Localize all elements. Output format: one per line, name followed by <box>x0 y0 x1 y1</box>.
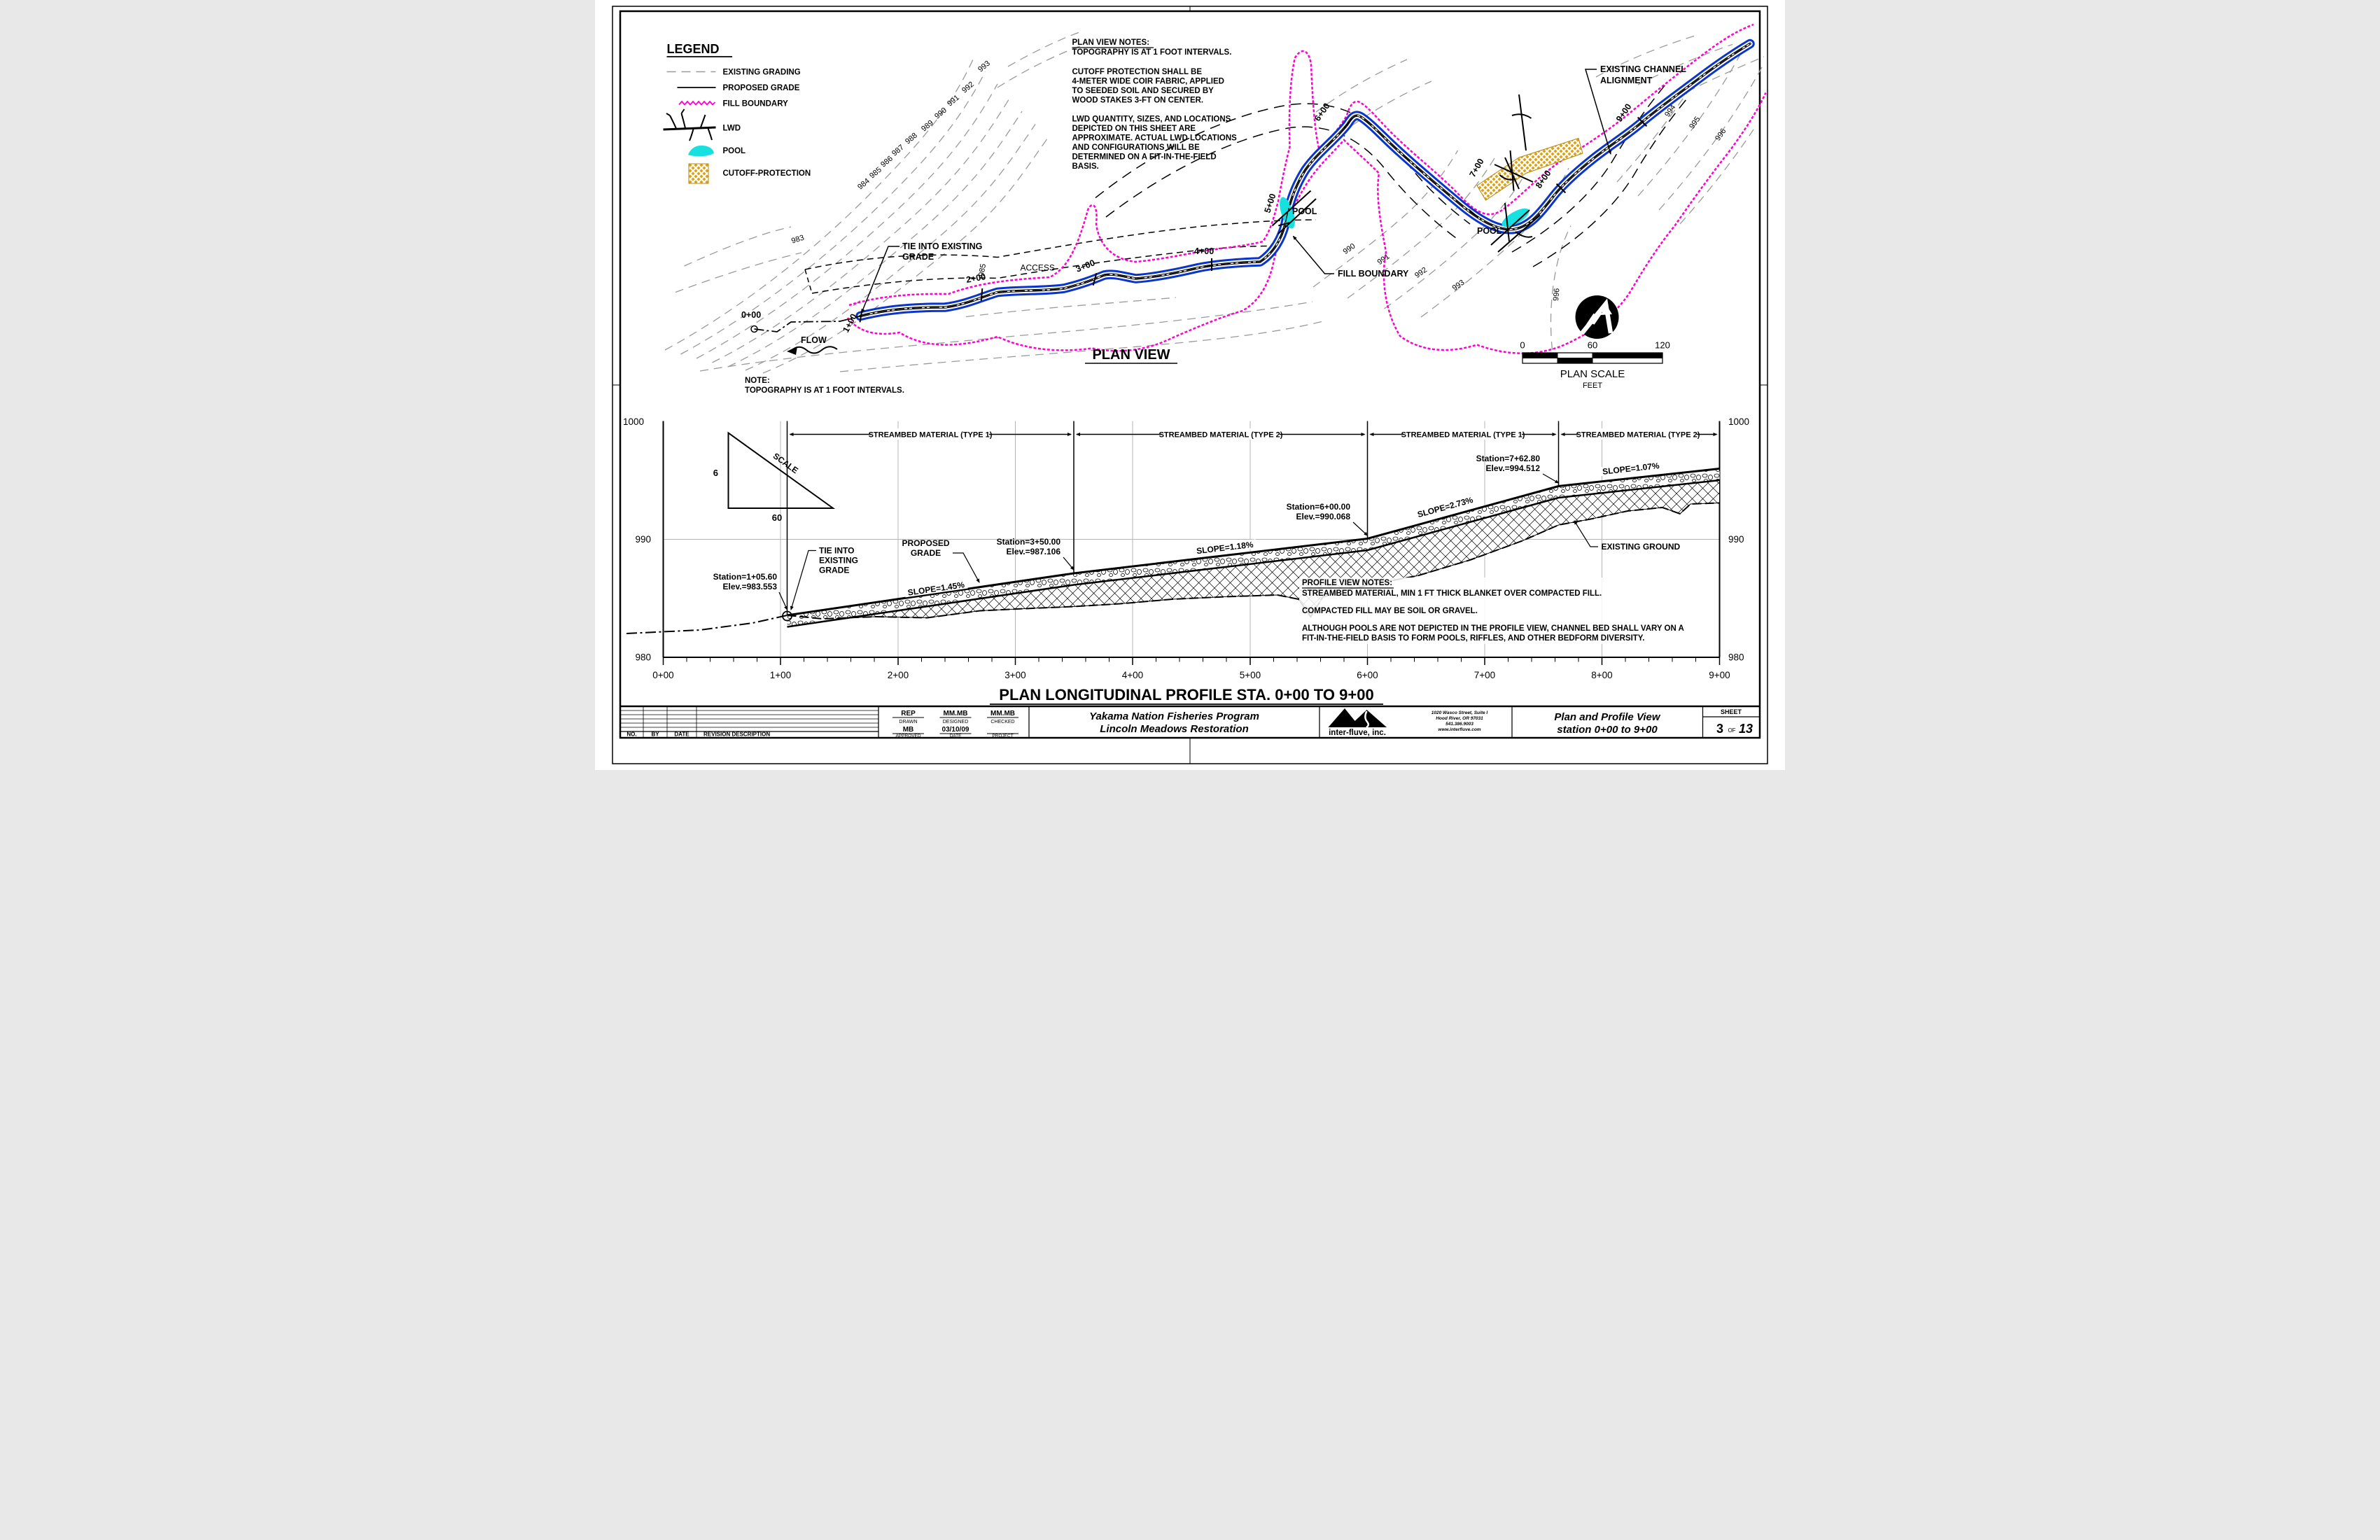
contour-label: 985 <box>868 166 883 181</box>
station-axis-label: 8+00 <box>1591 670 1612 680</box>
zone-label: STREAMBED MATERIAL (TYPE 1) <box>1401 431 1525 440</box>
station-axis-label: 5+00 <box>1240 670 1261 680</box>
elev-label: 990 <box>635 534 651 545</box>
legend-cutoff-protection-swatch <box>689 164 708 183</box>
station-label: 3+00 <box>1074 258 1096 274</box>
callout-tie-in: TIE INTO EXISTING GRADE <box>791 546 858 610</box>
contour-label: 984 <box>856 177 871 192</box>
project-name-block: Yakama Nation Fisheries Program Lincoln … <box>1089 710 1259 735</box>
flow-arrowhead <box>787 346 797 355</box>
notes-line: DETERMINED ON A FIT-IN-THE-FIELD <box>1072 153 1217 162</box>
contour-label: 995 <box>1688 115 1702 131</box>
scale-tick-label: 0 <box>1520 340 1525 351</box>
station-axis-label: 9+00 <box>1709 670 1730 680</box>
firm-address-line: 1020 Wasco Street, Suite I <box>1431 710 1488 715</box>
existing-channel-alignment-label: EXISTING CHANNEL <box>1600 64 1686 74</box>
station-axis-label: 6+00 <box>1357 670 1378 680</box>
contour-label: 983 <box>790 234 805 246</box>
plan-scale-label: PLAN SCALE <box>1560 368 1625 380</box>
zone-label: STREAMBED MATERIAL (TYPE 2) <box>1576 431 1700 440</box>
checked-value: MM.MB <box>990 710 1015 717</box>
flow-indicator: FLOW <box>787 335 837 355</box>
station-axis-label: 3+00 <box>1004 670 1025 680</box>
contour-label: 993 <box>1451 279 1466 293</box>
north-arrow <box>1576 295 1619 339</box>
svg-text:SLOPE=1.07%: SLOPE=1.07% <box>1602 461 1660 477</box>
legend-pool-swatch <box>688 146 714 156</box>
svg-text:GRADE: GRADE <box>911 548 941 558</box>
contour-label: 990 <box>933 106 948 121</box>
contour-label: 990 <box>1342 242 1357 256</box>
profile-station-labels: 0+00 1+00 2+00 3+00 4+00 5+00 6+00 7+00 … <box>652 670 1730 680</box>
scale-h-label: 60 <box>772 512 782 523</box>
plan-scale-bar: 0 60 120 PLAN SCALE FEET <box>1520 340 1669 391</box>
profile-view: STREAMBED MATERIAL (TYPE 1) STREAMBED MA… <box>623 416 1749 704</box>
plan-view-notes: PLAN VIEW NOTES: TOPOGRAPHY IS AT 1 FOOT… <box>1072 38 1238 171</box>
legend-fill-boundary-swatch <box>679 101 715 105</box>
plan-view: 993 992 991 990 989 988 987 986 985 984 … <box>664 24 1766 395</box>
legend-label: EXISTING GRADING <box>723 69 801 77</box>
flow-label: FLOW <box>801 335 827 345</box>
sheet-title-line1: Plan and Profile View <box>1554 711 1660 723</box>
station-label: 4+00 <box>1194 246 1214 256</box>
notes-line: FIT-IN-THE-FIELD BASIS TO FORM POOLS, RI… <box>1302 634 1644 643</box>
pool-label: POOL <box>1477 226 1502 236</box>
legend-label: FILL BOUNDARY <box>723 100 789 108</box>
scale-diag-label: SCALE <box>771 451 800 475</box>
zone-label: STREAMBED MATERIAL (TYPE 1) <box>869 431 993 440</box>
legend-label: POOL <box>723 147 746 155</box>
svg-text:Station=1+05.60: Station=1+05.60 <box>713 572 778 582</box>
station-label: 1+00 <box>841 312 859 334</box>
rev-col-desc: REVISION DESCRIPTION <box>703 731 770 738</box>
legend-lwd-swatch <box>664 109 716 141</box>
existing-ground-line <box>626 615 787 633</box>
plan-view-title: PLAN VIEW <box>1092 347 1170 363</box>
drawn-label: DRAWN <box>899 720 917 724</box>
notes-line: CUTOFF PROTECTION SHALL BE <box>1072 68 1203 76</box>
client-line2: Lincoln Meadows Restoration <box>1100 723 1249 735</box>
station-label: 0+00 <box>741 310 761 320</box>
slope-label: SLOPE=1.07% <box>1599 461 1662 477</box>
drawing-sheet: 993 992 991 990 989 988 987 986 985 984 … <box>595 0 1785 770</box>
station-label: 8+00 <box>1534 169 1553 190</box>
approved-label: APPROVED <box>895 734 920 738</box>
callout-sta6: Station=6+00.00 Elev.=990.068 <box>1287 502 1368 535</box>
rev-col-by: BY <box>651 731 659 738</box>
profile-scale-triangle: 6 60 SCALE <box>713 433 833 524</box>
zone-label: STREAMBED MATERIAL (TYPE 2) <box>1159 431 1283 440</box>
access-route: ACCESS <box>805 220 1316 293</box>
signature-block: REP MM.MB MM.MB DRAWN DESIGNED CHECKED M… <box>892 710 1018 738</box>
contour-label: 991 <box>946 94 961 108</box>
callout-sta76: Station=7+62.80 Elev.=994.512 <box>1476 454 1559 483</box>
notes-line: DEPICTED ON THIS SHEET ARE <box>1072 125 1196 133</box>
firm-address-line: www.interfluve.com <box>1438 727 1480 732</box>
flow-arrow <box>791 346 837 353</box>
notes-line: STREAMBED MATERIAL, MIN 1 FT THICK BLANK… <box>1302 589 1602 598</box>
rev-col-no: NO. <box>626 731 636 738</box>
legend-title: LEGEND <box>667 42 720 56</box>
notes-line: TO SEEDED SOIL AND SECURED BY <box>1072 87 1214 95</box>
station-label: 5+00 <box>1263 192 1278 214</box>
svg-text:PROPOSED: PROPOSED <box>902 538 949 548</box>
elev-label: 980 <box>1728 652 1744 663</box>
legend-label: LWD <box>723 125 741 133</box>
sheet-title-block: Plan and Profile View station 0+00 to 9+… <box>1554 711 1660 736</box>
legend-label: PROPOSED GRADE <box>723 84 800 92</box>
plan-note: TOPOGRAPHY IS AT 1 FOOT INTERVALS. <box>745 386 904 395</box>
station-axis-label: 0+00 <box>652 670 673 680</box>
checked-label: CHECKED <box>990 720 1014 724</box>
firm-address: 1020 Wasco Street, Suite I Hood River, O… <box>1431 710 1488 732</box>
fill-boundary-label: FILL BOUNDARY <box>1338 269 1409 279</box>
sheet-total: 13 <box>1739 722 1753 736</box>
profile-axis-ticks <box>664 657 1720 665</box>
profile-title: PLAN LONGITUDINAL PROFILE STA. 0+00 TO 9… <box>999 686 1373 703</box>
contour-label: 989 <box>920 119 935 134</box>
notes-title: PROFILE VIEW NOTES: <box>1302 579 1392 587</box>
title-block: NO. BY DATE REVISION DESCRIPTION REP MM.… <box>620 706 1760 738</box>
pool-label: POOL <box>1292 206 1317 216</box>
drawn-value: REP <box>901 710 916 717</box>
station-axis-label: 2+00 <box>888 670 909 680</box>
station-label: 2+00 <box>965 272 986 285</box>
svg-text:Station=3+50.00: Station=3+50.00 <box>997 537 1061 547</box>
project-label: PROJECT <box>992 734 1013 738</box>
leader-line <box>1294 237 1335 274</box>
svg-text:Station=7+62.80: Station=7+62.80 <box>1476 454 1541 463</box>
tie-into-existing-grade-label: GRADE <box>902 252 934 262</box>
callout-sta35: Station=3+50.00 Elev.=987.106 <box>997 537 1074 570</box>
contour-label: 996 <box>1552 288 1562 301</box>
sheet-label: SHEET <box>1721 708 1742 715</box>
callout-sta1: Station=1+05.60 Elev.=983.553 <box>713 572 792 621</box>
sheet-title-line2: station 0+00 to 9+00 <box>1557 724 1658 736</box>
elev-label: 1000 <box>1728 416 1749 427</box>
plan-profile-drawing: 993 992 991 990 989 988 987 986 985 984 … <box>595 0 1785 770</box>
streambed-material-zones: STREAMBED MATERIAL (TYPE 1) STREAMBED MA… <box>790 428 1717 440</box>
interfluve-logo <box>1329 708 1387 727</box>
access-label: ACCESS <box>1021 263 1055 273</box>
elev-label: 990 <box>1728 534 1744 545</box>
notes-line: ALTHOUGH POOLS ARE NOT DEPICTED IN THE P… <box>1302 624 1684 633</box>
scale-v-label: 6 <box>713 468 718 478</box>
elev-label: 980 <box>635 652 651 663</box>
notes-line: BASIS. <box>1072 162 1099 171</box>
svg-text:Elev.=994.512: Elev.=994.512 <box>1485 463 1540 473</box>
designed-value: MM.MB <box>944 710 968 717</box>
svg-text:GRADE: GRADE <box>819 566 849 575</box>
plan-scale-unit: FEET <box>1583 381 1602 390</box>
station-label: 9+00 <box>1614 102 1634 124</box>
station-axis-label: 4+00 <box>1122 670 1143 680</box>
svg-text:Elev.=987.106: Elev.=987.106 <box>1006 547 1060 556</box>
svg-text:TIE INTO: TIE INTO <box>819 546 854 556</box>
legend-label: CUTOFF-PROTECTION <box>723 169 811 178</box>
callout-existing-ground: EXISTING GROUND <box>1574 521 1681 552</box>
svg-text:Elev.=983.553: Elev.=983.553 <box>722 582 777 591</box>
contour-label: 991 <box>1376 253 1392 267</box>
svg-text:Elev.=990.068: Elev.=990.068 <box>1296 512 1350 521</box>
firm-name: inter-fluve, inc. <box>1329 729 1386 737</box>
cutoff-protection-area <box>1477 139 1583 201</box>
notes-line: COMPACTED FILL MAY BE SOIL OR GRAVEL. <box>1302 607 1478 615</box>
profile-view-notes: PROFILE VIEW NOTES: STREAMBED MATERIAL, … <box>1299 577 1712 644</box>
notes-line: AND CONFIGURATIONS WILL BE <box>1072 143 1200 152</box>
station-axis-label: 7+00 <box>1474 670 1495 680</box>
tie-into-existing-grade-label: TIE INTO EXISTING <box>902 241 982 251</box>
notes-title: PLAN VIEW NOTES: <box>1072 38 1150 47</box>
firm-block: inter-fluve, inc. 1020 Wasco Street, Sui… <box>1329 708 1488 737</box>
notes-line: 4-METER WIDE COIR FABRIC, APPLIED <box>1072 78 1224 86</box>
date-value: 03/10/09 <box>942 726 969 734</box>
svg-text:EXISTING: EXISTING <box>819 556 858 566</box>
notes-line: LWD QUANTITY, SIZES, AND LOCATIONS <box>1072 115 1231 124</box>
notes-line: WOOD STAKES 3-FT ON CENTER. <box>1072 97 1204 105</box>
contour-label: 993 <box>976 59 992 74</box>
station-axis-label: 1+00 <box>770 670 791 680</box>
client-line1: Yakama Nation Fisheries Program <box>1089 710 1259 722</box>
contour-label: 992 <box>1413 266 1429 280</box>
scale-tick-label: 60 <box>1588 340 1597 351</box>
firm-address-line: Hood River, OR 97031 <box>1436 716 1483 721</box>
svg-text:EXISTING GROUND: EXISTING GROUND <box>1602 542 1681 552</box>
notes-line: TOPOGRAPHY IS AT 1 FOOT INTERVALS. <box>1072 48 1232 57</box>
rev-col-date: DATE <box>674 731 689 738</box>
contour-label: 986 <box>879 155 895 169</box>
notes-line: APPROXIMATE. ACTUAL LWD LOCATIONS <box>1072 134 1238 143</box>
callout-proposed-grade: PROPOSED GRADE <box>902 538 979 582</box>
legend: LEGEND EXISTING GRADING PROPOSED GRADE F… <box>664 42 811 183</box>
approved-value: MB <box>903 726 914 734</box>
sheet-number-block: SHEET 3 OF 13 <box>1703 708 1760 736</box>
revision-table: NO. BY DATE REVISION DESCRIPTION <box>620 706 878 738</box>
existing-channel-alignment-label: ALIGNMENT <box>1600 76 1653 85</box>
scale-tick-label: 120 <box>1655 340 1670 351</box>
elev-label: 1000 <box>623 416 644 427</box>
contour-label: 987 <box>890 143 906 158</box>
sheet-number: 3 <box>1716 722 1723 736</box>
date-label: DATE <box>950 734 962 738</box>
sheet-of: OF <box>1728 727 1735 734</box>
svg-text:Station=6+00.00: Station=6+00.00 <box>1287 502 1351 512</box>
designed-label: DESIGNED <box>943 720 969 724</box>
plan-note: NOTE: <box>745 377 770 385</box>
firm-address-line: 541.386.9003 <box>1445 722 1473 727</box>
